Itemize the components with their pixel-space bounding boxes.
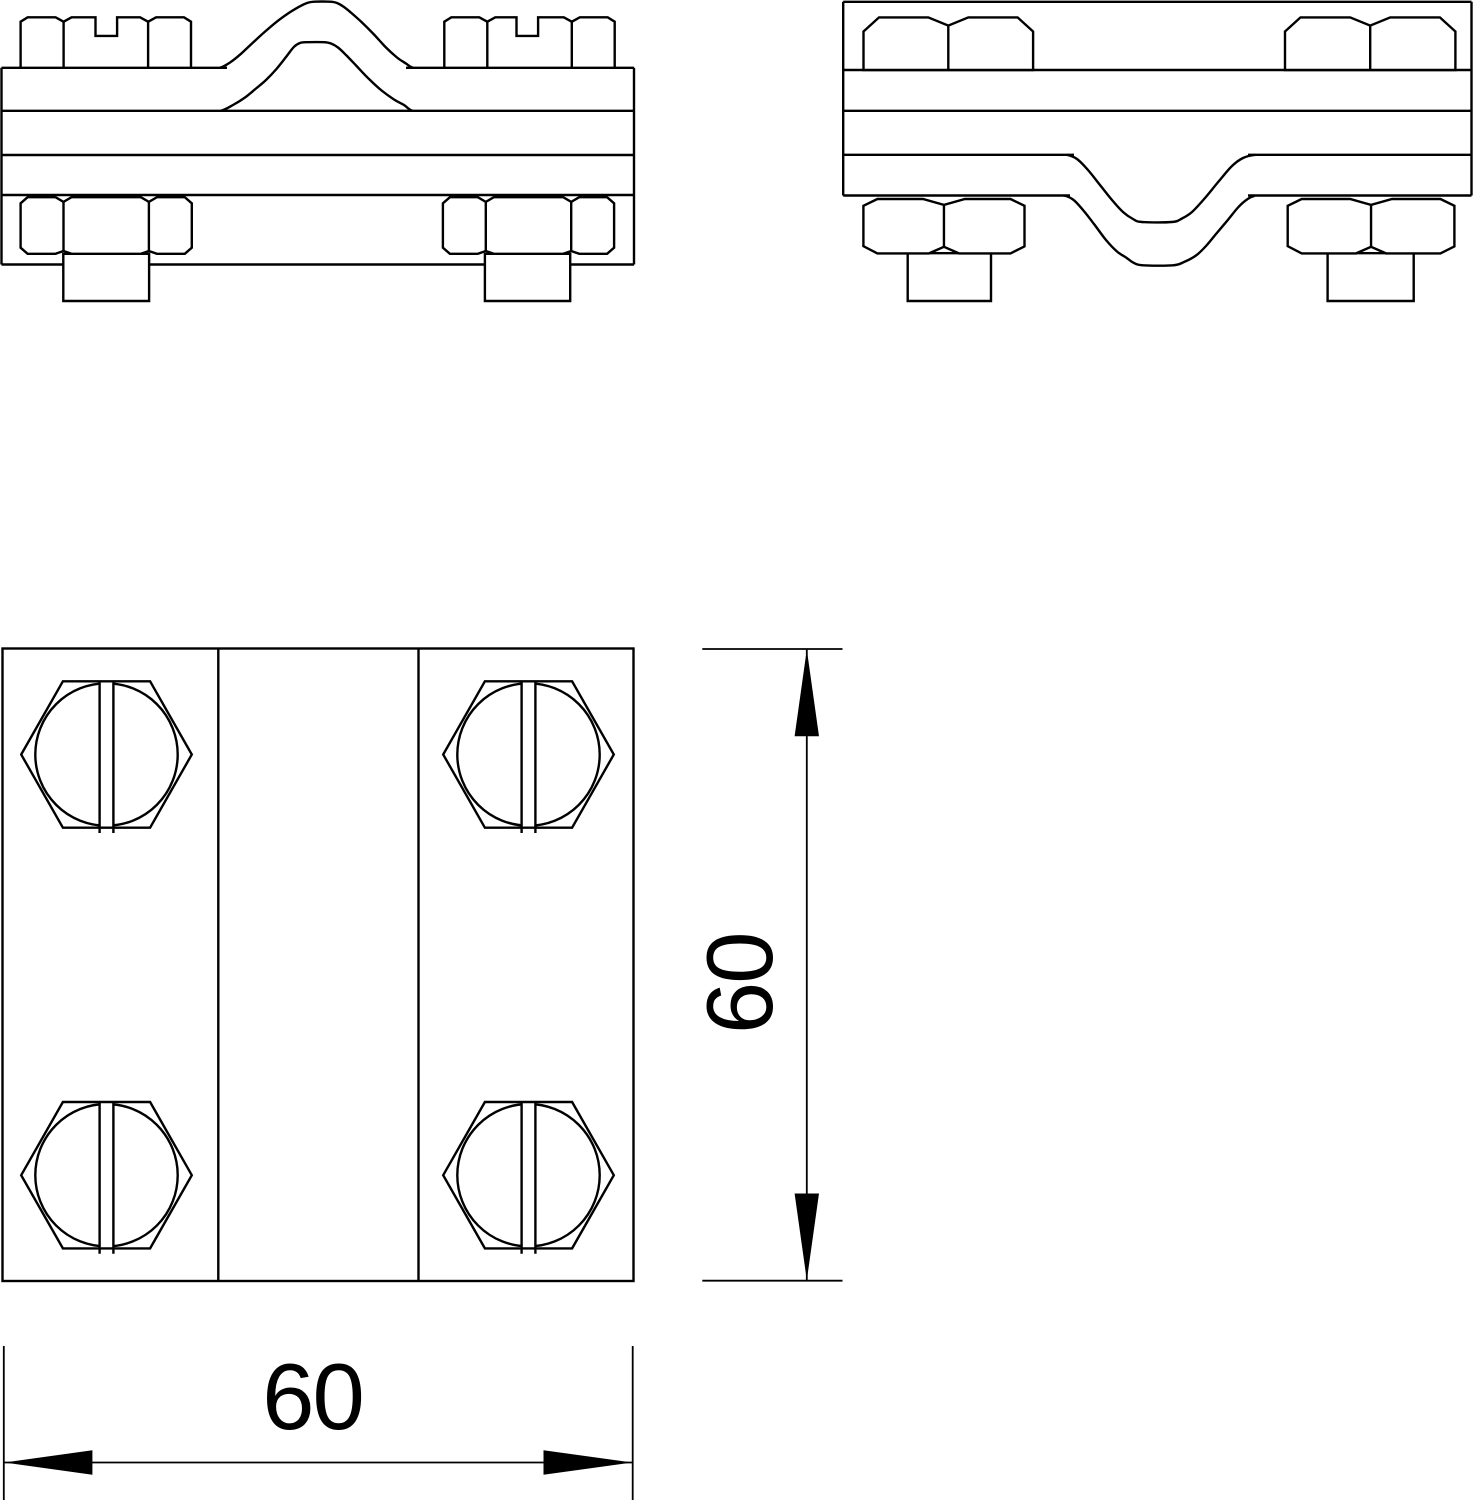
- svg-text:60: 60: [687, 933, 792, 1034]
- svg-text:60: 60: [262, 1344, 363, 1449]
